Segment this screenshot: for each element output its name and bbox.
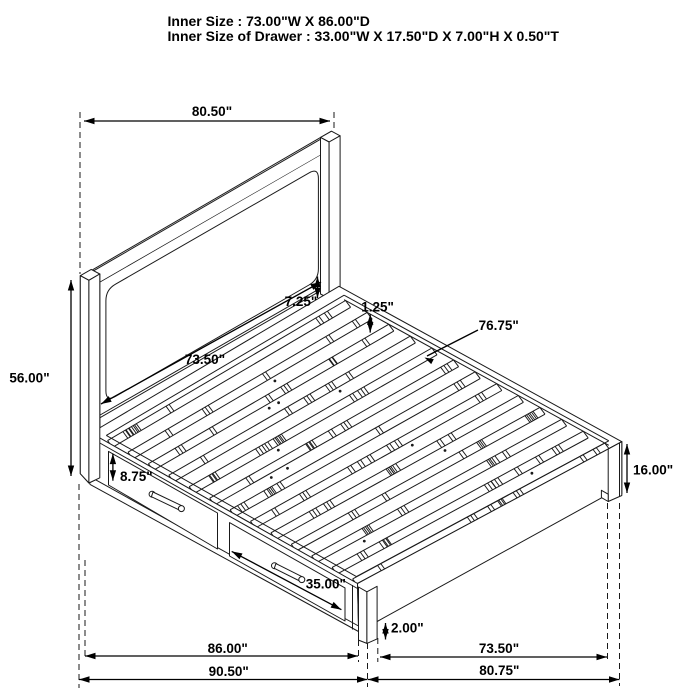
svg-text:2.00": 2.00" [391, 620, 424, 635]
svg-text:80.75": 80.75" [479, 663, 519, 678]
svg-text:56.00": 56.00" [9, 370, 49, 385]
svg-text:73.50": 73.50" [185, 352, 225, 367]
svg-text:80.50": 80.50" [192, 104, 232, 119]
svg-text:7.25": 7.25" [285, 294, 318, 309]
svg-text:86.00": 86.00" [208, 641, 248, 656]
svg-text:90.50": 90.50" [209, 664, 249, 679]
svg-text:16.00": 16.00" [633, 462, 673, 477]
svg-text:35.00": 35.00" [306, 577, 346, 592]
svg-text:1.25": 1.25" [361, 300, 394, 315]
svg-text:8.75": 8.75" [120, 469, 153, 484]
svg-text:73.50": 73.50" [479, 641, 519, 656]
svg-text:Inner Size : 73.00"W X 86.00"D: Inner Size : 73.00"W X 86.00"D [168, 13, 370, 29]
svg-text:76.75": 76.75" [479, 318, 519, 333]
svg-text:Inner Size of Drawer : 33.00"W: Inner Size of Drawer : 33.00"W X 17.50"D… [168, 28, 560, 44]
